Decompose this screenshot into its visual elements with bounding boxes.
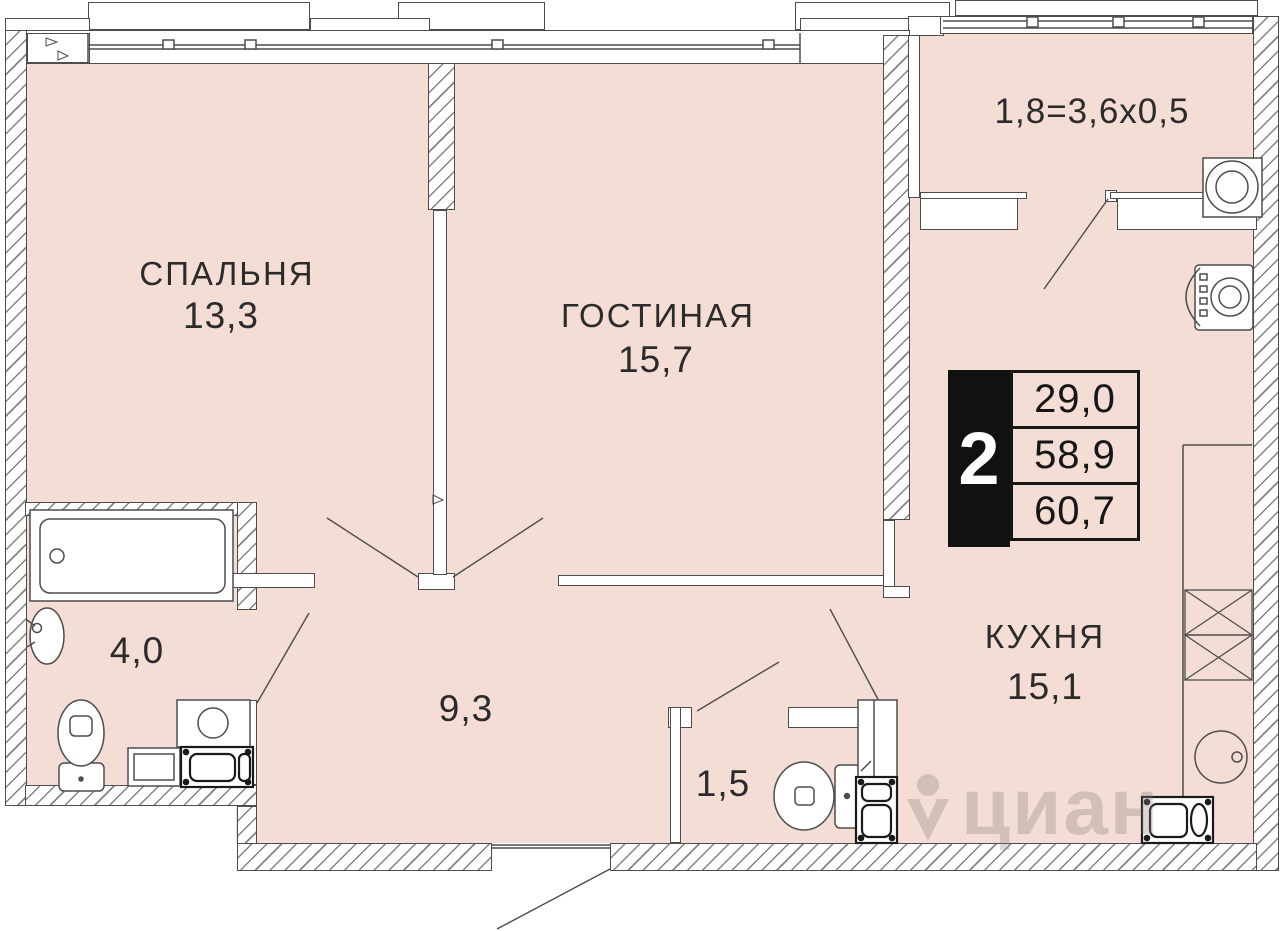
- wall-bathroom-top: [25, 502, 257, 516]
- room-label-kitchen: КУХНЯ: [985, 618, 1105, 656]
- wall-wc-left: [670, 707, 681, 843]
- balcony-partition-box: [920, 198, 1018, 230]
- room-area-bathroom: 4,0: [110, 630, 164, 672]
- wall-living-bottom: [558, 575, 895, 586]
- wall-right-exterior: [1253, 16, 1279, 871]
- badge-area-values: 29,0 58,9 60,7: [1010, 370, 1140, 547]
- wall-balcony-left-block: [908, 16, 944, 36]
- exterior-notch: [0, 806, 236, 931]
- wall-bathroom-bottom: [25, 785, 257, 806]
- badge-area-value: 60,7: [1010, 482, 1140, 541]
- exterior-slab-outline: [88, 2, 310, 30]
- wall-bottom-exterior: [237, 843, 492, 871]
- balcony-dimension-label: 1,8=3,6x0,5: [995, 92, 1190, 132]
- wall-left-exterior: [5, 30, 27, 806]
- room-label-bedroom: СПАЛЬНЯ: [139, 255, 314, 293]
- badge-area-value: 29,0: [1010, 370, 1140, 429]
- wall-living-kitchen: [883, 35, 910, 520]
- wall-bottom-exterior: [610, 843, 1257, 871]
- wall-living-kitchen-lip: [908, 35, 920, 198]
- floor-balcony: [918, 33, 1253, 67]
- badge-area-value: 58,9: [1010, 426, 1140, 485]
- room-area-hallway: 9,3: [439, 688, 493, 730]
- wall-living-right-foot: [883, 586, 910, 598]
- wall-bathroom-right-jamb: [243, 700, 257, 785]
- wall-bedroom-living-divider-top: [428, 63, 455, 210]
- entrance-threshold: [492, 845, 610, 848]
- balcony-glazing-band: [940, 16, 1253, 34]
- wall-bathroom-right-upper: [237, 502, 257, 610]
- balcony-partition-box: [1117, 198, 1257, 230]
- floor-plan: СПАЛЬНЯ 13,3 ГОСТИНАЯ 15,7 КУХНЯ 15,1 4,…: [0, 0, 1280, 931]
- balcony-slab-outline: [955, 0, 1258, 16]
- room-area-living: 15,7: [618, 339, 694, 381]
- room-area-kitchen: 15,1: [1007, 666, 1083, 708]
- room-area-bedroom: 13,3: [183, 295, 259, 337]
- wall-step: [237, 806, 257, 844]
- wall-door-post: [418, 573, 455, 590]
- room-area-wc: 1,5: [696, 763, 750, 805]
- wall-corner-block: [27, 33, 90, 63]
- wall-bedroom-living-divider: [433, 210, 447, 575]
- room-label-living: ГОСТИНАЯ: [561, 297, 755, 335]
- wall-hall-stub: [226, 573, 315, 588]
- wall-wc-top: [788, 707, 895, 728]
- wall-top-window-band: [5, 30, 910, 64]
- badge-rooms-count: 2: [948, 370, 1010, 547]
